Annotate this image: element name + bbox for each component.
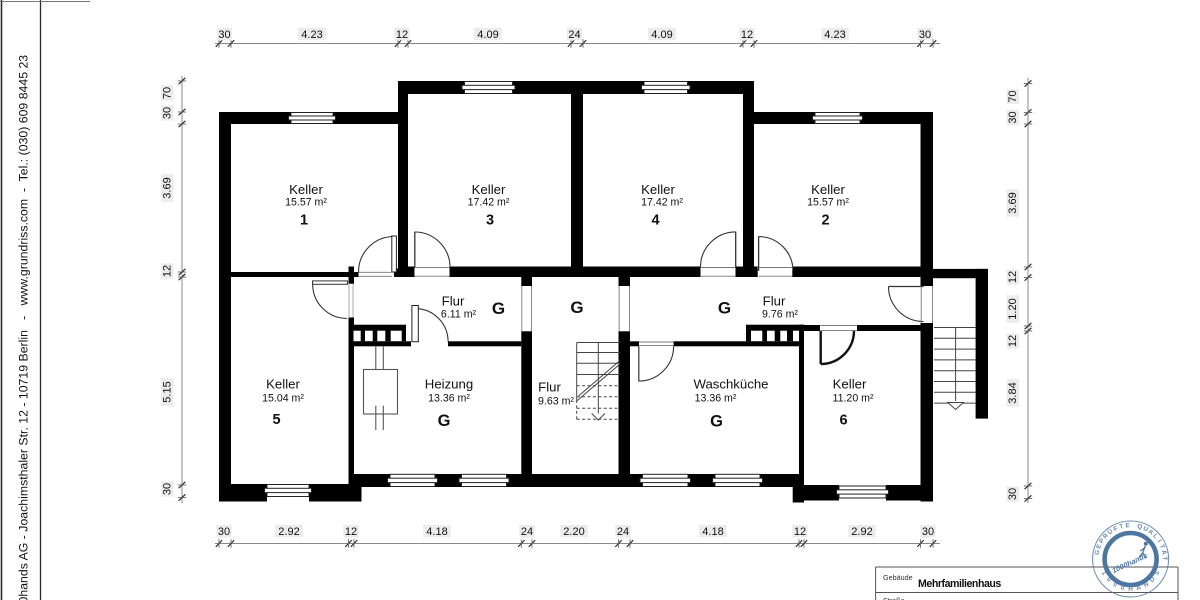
svg-text:1: 1 <box>300 213 308 229</box>
svg-text:4.09: 4.09 <box>477 29 498 41</box>
svg-text:G: G <box>710 413 723 431</box>
svg-text:30: 30 <box>218 526 230 538</box>
svg-text:Heizung: Heizung <box>425 377 473 392</box>
svg-text:17.42 m²: 17.42 m² <box>468 197 510 209</box>
svg-text:Keller: Keller <box>811 182 845 197</box>
svg-text:Waschküche: Waschküche <box>693 377 768 392</box>
svg-text:12: 12 <box>1007 335 1019 347</box>
svg-text:Keller: Keller <box>266 377 300 392</box>
svg-text:24: 24 <box>568 29 580 41</box>
svg-text:5: 5 <box>272 412 280 428</box>
svg-text:G: G <box>492 299 505 318</box>
svg-text:15.57 m²: 15.57 m² <box>285 197 327 209</box>
svg-text:Straße: Straße <box>883 596 905 600</box>
svg-text:24: 24 <box>521 526 533 538</box>
svg-text:4.23: 4.23 <box>301 29 322 41</box>
svg-text:1.20: 1.20 <box>1007 298 1019 319</box>
svg-text:13.36 m²: 13.36 m² <box>428 393 470 405</box>
svg-text:Keller: Keller <box>641 182 675 197</box>
svg-text:30: 30 <box>1007 488 1019 500</box>
svg-text:1000hands AG - Joachimsthaler: 1000hands AG - Joachimsthaler Str. 12 - … <box>17 55 31 600</box>
svg-text:3: 3 <box>486 213 494 229</box>
svg-text:Flur: Flur <box>442 294 465 309</box>
svg-text:H: H <box>1128 586 1133 593</box>
svg-text:2.92: 2.92 <box>851 526 872 538</box>
svg-text:17.42 m²: 17.42 m² <box>641 197 683 209</box>
svg-text:Keller: Keller <box>472 182 506 197</box>
svg-text:12: 12 <box>1007 271 1019 283</box>
svg-text:5.15: 5.15 <box>162 381 174 402</box>
svg-text:30: 30 <box>922 526 934 538</box>
svg-text:6: 6 <box>839 413 847 429</box>
svg-text:G: G <box>718 299 731 318</box>
svg-text:30: 30 <box>1007 111 1019 123</box>
svg-text:15.04 m²: 15.04 m² <box>262 393 304 405</box>
svg-text:Flur: Flur <box>763 294 786 309</box>
svg-text:G: G <box>570 298 583 317</box>
svg-text:G: G <box>438 412 451 430</box>
svg-text:Gebäude: Gebäude <box>883 573 913 582</box>
svg-text:4.23: 4.23 <box>824 29 845 41</box>
svg-text:12: 12 <box>794 526 806 538</box>
svg-text:2.92: 2.92 <box>278 526 299 538</box>
svg-text:Mehrfamilienhaus: Mehrfamilienhaus <box>918 578 1001 590</box>
svg-text:3.69: 3.69 <box>162 177 174 198</box>
svg-text:4.09: 4.09 <box>651 29 672 41</box>
svg-text:Keller: Keller <box>833 377 867 392</box>
svg-text:13.36 m²: 13.36 m² <box>695 393 737 405</box>
svg-text:15.57 m²: 15.57 m² <box>807 197 849 209</box>
svg-text:24: 24 <box>617 526 629 538</box>
svg-text:30: 30 <box>218 29 230 41</box>
svg-text:12: 12 <box>741 29 753 41</box>
svg-text:9.63 m²: 9.63 m² <box>538 396 574 408</box>
svg-text:4: 4 <box>651 213 659 229</box>
svg-text:12: 12 <box>345 526 357 538</box>
svg-text:3.69: 3.69 <box>1007 192 1019 213</box>
svg-text:30: 30 <box>162 483 174 495</box>
svg-text:4.18: 4.18 <box>426 526 447 538</box>
svg-text:6.11 m²: 6.11 m² <box>441 309 477 321</box>
svg-text:12: 12 <box>396 29 408 41</box>
svg-text:70: 70 <box>162 87 174 99</box>
svg-text:2.20: 2.20 <box>563 526 584 538</box>
svg-text:30: 30 <box>162 107 174 119</box>
svg-text:11.20 m²: 11.20 m² <box>832 393 873 405</box>
svg-text:12: 12 <box>162 265 174 277</box>
svg-text:2: 2 <box>821 213 829 229</box>
svg-text:70: 70 <box>1007 90 1019 102</box>
svg-text:30: 30 <box>919 29 931 41</box>
svg-text:4.18: 4.18 <box>702 526 723 538</box>
svg-text:Flur: Flur <box>538 380 561 395</box>
svg-text:Keller: Keller <box>289 182 323 197</box>
svg-text:T: T <box>1161 556 1168 560</box>
svg-text:3.84: 3.84 <box>1007 382 1019 403</box>
svg-text:9.76 m²: 9.76 m² <box>762 309 798 321</box>
